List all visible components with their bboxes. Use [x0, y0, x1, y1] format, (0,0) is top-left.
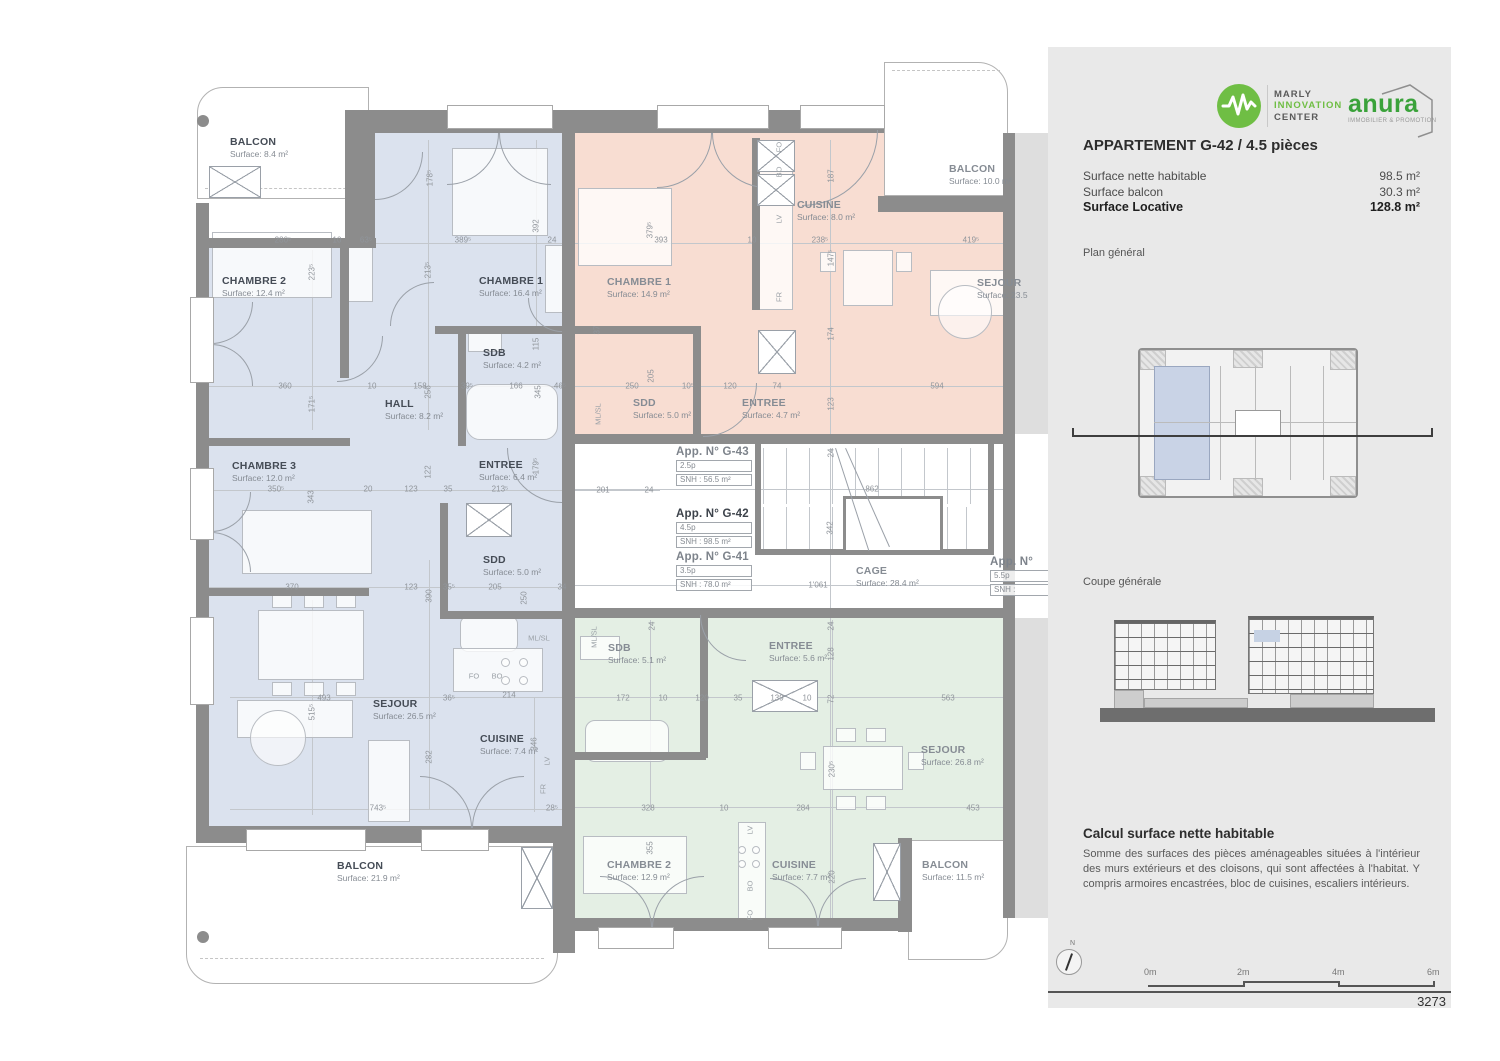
- room-name: CUISINE: [772, 860, 830, 871]
- dimension-label: 223⁵: [308, 264, 317, 281]
- room-label: SEJOUR Surface: 23.5: [977, 278, 1028, 300]
- dimension-label: 345: [534, 385, 543, 398]
- plan-sheet: BALCON Surface: 8.4 m² CHAMBRE 2 Surface…: [0, 0, 1500, 1061]
- apartment-tag: App. N° G-43 2.5p SNH : 56.5 m²: [676, 446, 752, 486]
- dimension-label: 370: [285, 583, 298, 592]
- room-surface: Surface: 7.4 m²: [480, 746, 538, 756]
- dimension-label: 355: [646, 841, 655, 854]
- surface-stats: Surface nette habitable 98.5 m² Surface …: [1083, 169, 1420, 216]
- dimension-label: 35: [734, 694, 743, 703]
- dimension-label: 282: [425, 750, 434, 763]
- room-name: CHAMBRE 2: [222, 276, 286, 287]
- room-name: CUISINE: [480, 734, 538, 745]
- hairline: [763, 448, 764, 504]
- room-surface: Surface: 7.7 m²: [772, 872, 830, 882]
- fixture-label: ML/SL: [528, 634, 550, 643]
- room-name: ENTREE: [479, 460, 537, 471]
- dimension-label: 122: [424, 465, 433, 478]
- round-fixture: [752, 860, 760, 868]
- furniture: [336, 594, 356, 608]
- dimension-label: 123: [827, 397, 836, 410]
- stat-value: 128.8 m²: [1370, 200, 1420, 216]
- stat-row: Surface Locative 128.8 m²: [1083, 200, 1420, 216]
- wall: [440, 503, 448, 615]
- dimension-label: 328: [641, 804, 654, 813]
- window-opening: [190, 297, 214, 383]
- marly-line2: INNOVATION: [1274, 100, 1342, 112]
- dimension-label: 201: [596, 486, 609, 495]
- dimension-label: 280⁵: [275, 236, 292, 245]
- room-label: BALCON Surface: 8.4 m²: [230, 137, 288, 159]
- dimension-label: 256: [424, 385, 433, 398]
- room-surface: Surface: 11.5 m²: [922, 872, 984, 882]
- room-name: ENTREE: [742, 398, 800, 409]
- apartment-rooms: 4.5p: [676, 522, 752, 534]
- calc-title: Calcul surface nette habitable: [1083, 826, 1274, 841]
- room-surface: Surface: 23.5: [977, 290, 1028, 300]
- stat-row: Surface balcon 30.3 m²: [1083, 185, 1420, 201]
- dimension-label: 390: [425, 589, 434, 602]
- room-name: CHAMBRE 1: [607, 277, 671, 288]
- hairline: [786, 448, 787, 504]
- wall: [553, 843, 575, 953]
- room-label: CUISINE Surface: 7.4 m²: [480, 734, 538, 756]
- round-fixture: [519, 658, 528, 667]
- window-opening: [800, 105, 885, 129]
- scale-tick-0m: 0m: [1144, 967, 1157, 977]
- scale-tick-6m: 6m: [1427, 967, 1440, 977]
- dimension-label: 10: [368, 382, 377, 391]
- room-surface: Surface: 4.7 m²: [742, 410, 800, 420]
- dimension-label: 230⁵: [828, 761, 837, 778]
- furniture: [578, 188, 672, 266]
- fixture-label: LV: [543, 757, 552, 766]
- hairline: [966, 507, 967, 549]
- dimension-label: 10⁵: [682, 382, 694, 391]
- fixture-label: LV: [746, 826, 755, 835]
- room-surface: Surface: 28.4 m²: [856, 578, 919, 588]
- round-fixture: [738, 846, 746, 854]
- hairline: [947, 507, 948, 549]
- marly-line3: CENTER: [1274, 112, 1342, 124]
- dimension-label: 343: [307, 490, 316, 503]
- apartment-tag: App. N° G-42 4.5p SNH : 98.5 m²: [676, 508, 752, 548]
- section-cut-line: [1072, 435, 1433, 437]
- furniture: [738, 822, 766, 920]
- dimension-label: 10: [748, 236, 757, 245]
- furniture: [460, 616, 518, 652]
- room-surface: Surface: 8.0 m²: [797, 212, 855, 222]
- shaft-crossbox: [209, 166, 261, 198]
- apartment-snh: SNH : 78.0 m²: [676, 579, 752, 591]
- room-label: CHAMBRE 3 Surface: 12.0 m²: [232, 461, 296, 483]
- fixture-label: ML/SL: [594, 403, 603, 425]
- fixture-label: FO: [775, 142, 784, 152]
- room-surface: Surface: 26.8 m²: [921, 757, 984, 767]
- highlighted-apartment: [1154, 366, 1210, 480]
- room-surface: Surface: 5.6 m²: [769, 653, 827, 663]
- dimension-label: 10: [333, 236, 342, 245]
- apartment-snh: SNH : 98.5 m²: [676, 536, 752, 548]
- wall: [878, 196, 1010, 212]
- dimension-label: 35⁵: [443, 583, 455, 592]
- room-name: SDB: [608, 643, 666, 654]
- room-surface: Surface: 16.4 m²: [479, 288, 543, 298]
- fixture-label: FO: [746, 910, 755, 920]
- furniture: [896, 252, 912, 272]
- shaft-crossbox: [521, 847, 553, 909]
- room-label: CUISINE Surface: 8.0 m²: [797, 200, 855, 222]
- room-surface: Surface: 14.9 m²: [607, 289, 671, 299]
- apartment-rooms: 2.5p: [676, 460, 752, 472]
- apartment-number: App. N°: [990, 556, 1048, 568]
- window-opening: [190, 468, 214, 540]
- room-surface: Surface: 12.9 m²: [607, 872, 671, 882]
- fixture-label: FO: [469, 672, 479, 681]
- room-name: BALCON: [922, 860, 984, 871]
- dimension-label: 10: [803, 694, 812, 703]
- fixture-label: BO: [775, 167, 784, 178]
- dimension-label: 24: [827, 449, 836, 458]
- furniture: [866, 796, 886, 810]
- room-label: SEJOUR Surface: 26.8 m²: [921, 745, 984, 767]
- room-name: ENTREE: [769, 641, 827, 652]
- round-fixture: [501, 658, 510, 667]
- sheet-number: 3273: [1417, 994, 1446, 1009]
- hairline: [575, 585, 1010, 586]
- scale-tick-4m: 4m: [1332, 967, 1345, 977]
- stat-value: 98.5 m²: [1379, 169, 1420, 185]
- apartment-snh: SNH : 56.5 m²: [676, 474, 752, 486]
- dimension-label: 28⁵: [546, 804, 558, 813]
- marly-wordmark: MARLY INNOVATION CENTER: [1274, 89, 1342, 124]
- dimension-label: 453: [966, 804, 979, 813]
- dimension-label: 213⁵: [424, 262, 433, 279]
- furniture: [800, 752, 816, 770]
- hairline: [970, 448, 971, 504]
- wall: [562, 608, 1010, 618]
- hairline: [196, 490, 660, 491]
- room-label: SDB Surface: 5.1 m²: [608, 643, 666, 665]
- dimension-label: 393: [654, 236, 667, 245]
- furniture: [866, 728, 886, 742]
- fixture-label: BO: [746, 881, 755, 892]
- page-title: APPARTEMENT G-42 / 4.5 pièces: [1083, 137, 1318, 154]
- furniture: [258, 610, 364, 680]
- room-surface: Surface: 21.9 m²: [337, 873, 400, 883]
- hairline: [575, 489, 1010, 490]
- window-opening: [246, 829, 366, 851]
- logo-divider: [1267, 85, 1268, 127]
- room-surface: Surface: 10.0 m²: [949, 176, 1012, 186]
- wall: [562, 434, 1010, 444]
- dimension-label: 24: [645, 486, 654, 495]
- dimension-label: 187: [827, 169, 836, 182]
- elevator-shaft: [843, 496, 943, 553]
- dimension-label: 250: [625, 382, 638, 391]
- room-label: CHAMBRE 1 Surface: 16.4 m²: [479, 276, 543, 298]
- dimension-label: 213⁵: [492, 485, 509, 494]
- dimension-label: 515⁵: [308, 704, 317, 721]
- wall: [1003, 133, 1015, 918]
- stat-label: Surface Locative: [1083, 200, 1183, 216]
- dimension-label: 24: [548, 236, 557, 245]
- hairline: [575, 807, 1010, 808]
- dimension-label: 166: [509, 382, 522, 391]
- room-label: ENTREE Surface: 6.4 m²: [479, 460, 537, 482]
- stat-label: Surface nette habitable: [1083, 169, 1206, 185]
- apartment-rooms: 3.5p: [676, 565, 752, 577]
- dimension-label: 350⁵: [268, 485, 285, 494]
- room-label: SEJOUR Surface: 26.5 m²: [373, 699, 436, 721]
- room-name: CHAMBRE 1: [479, 276, 543, 287]
- dimension-label: 342: [826, 521, 835, 534]
- balcony-dashed-line: [200, 958, 544, 959]
- dimension-label: 24: [648, 622, 657, 631]
- wall: [988, 443, 994, 555]
- furniture: [836, 728, 856, 742]
- furniture: [843, 250, 893, 306]
- room-name: CUISINE: [797, 200, 855, 211]
- dimension-label: 392: [532, 219, 541, 232]
- pillar: [197, 115, 209, 127]
- room-label: CUISINE Surface: 7.7 m²: [772, 860, 830, 882]
- plan-general-thumbnail: [1138, 348, 1358, 498]
- room-name: CAGE: [856, 566, 919, 577]
- balcony-dashed-line: [892, 70, 1000, 71]
- shaft-crossbox: [757, 174, 795, 206]
- hairline: [575, 386, 1010, 387]
- dimension-label: 128: [827, 647, 836, 660]
- room-label: CHAMBRE 1 Surface: 14.9 m²: [607, 277, 671, 299]
- dimension-label: 35: [444, 485, 453, 494]
- room-label: ENTREE Surface: 5.6 m²: [769, 641, 827, 663]
- room-label: SDD Surface: 5.0 m²: [633, 398, 691, 420]
- furniture: [272, 682, 292, 696]
- dimension-label: 39⁵: [461, 382, 473, 391]
- shaft-crossbox: [873, 843, 901, 901]
- fixture-label: ML/SL: [590, 626, 599, 648]
- room-name: SEJOUR: [921, 745, 984, 756]
- round-fixture: [738, 860, 746, 868]
- calc-body: Somme des surfaces des pièces aménageabl…: [1083, 847, 1420, 892]
- room-surface: Surface: 5.1 m²: [608, 655, 666, 665]
- room-surface: Surface: 8.4 m²: [230, 149, 288, 159]
- room-label: ENTREE Surface: 4.7 m²: [742, 398, 800, 420]
- marly-wave-icon: [1216, 83, 1262, 129]
- hairline: [786, 507, 787, 549]
- dimension-label: 284: [796, 804, 809, 813]
- dimension-label: 389⁵: [455, 236, 472, 245]
- wall: [575, 752, 706, 760]
- dimension-label: 34: [558, 583, 567, 592]
- stat-value: 30.3 m²: [1379, 185, 1420, 201]
- furniture: [453, 648, 543, 692]
- wall: [209, 438, 350, 446]
- furniture: [466, 384, 558, 440]
- scale-tick-2m: 2m: [1237, 967, 1250, 977]
- coupe-generale-label: Coupe générale: [1083, 576, 1161, 588]
- dimension-label: 123: [404, 583, 417, 592]
- balcony-outline: [908, 840, 1008, 960]
- room-name: SEJOUR: [373, 699, 436, 710]
- window-opening: [598, 927, 674, 949]
- hairline: [809, 507, 810, 549]
- floor-plan: BALCON Surface: 8.4 m² CHAMBRE 2 Surface…: [0, 0, 1048, 1061]
- room-surface: Surface: 5.0 m²: [483, 567, 541, 577]
- room-surface: Surface: 6.4 m²: [479, 472, 537, 482]
- dimension-label: 37: [593, 326, 602, 335]
- apartment-number: App. N° G-42: [676, 508, 752, 520]
- wall: [435, 326, 562, 334]
- dimension-label: 862: [865, 485, 878, 494]
- dimension-label: 205: [488, 583, 501, 592]
- dimension-label: 63⁵: [360, 236, 372, 245]
- dimension-label: 178⁵: [426, 170, 435, 187]
- shaft-crossbox: [466, 503, 512, 537]
- hairline: [763, 507, 764, 549]
- dimension-label: 123: [404, 485, 417, 494]
- stat-row: Surface nette habitable 98.5 m²: [1083, 169, 1420, 185]
- marly-line1: MARLY: [1274, 89, 1342, 101]
- apartment-rooms: 5.5p: [990, 570, 1048, 582]
- dimension-label: 594: [930, 382, 943, 391]
- room-name: BALCON: [949, 164, 1012, 175]
- marly-logo: MARLY INNOVATION CENTER: [1216, 83, 1342, 129]
- plan-general-label: Plan général: [1083, 247, 1145, 259]
- dimension-label: 214: [502, 691, 515, 700]
- dimension-label: 238⁵: [812, 236, 829, 245]
- footer-rule: [1048, 991, 1451, 993]
- anura-logo: anura IMMOBILIER & PROMOTION: [1348, 91, 1438, 139]
- room-label: BALCON Surface: 21.9 m²: [337, 861, 400, 883]
- room-name: BALCON: [230, 137, 288, 148]
- room-label: CHAMBRE 2 Surface: 12.4 m²: [222, 276, 286, 298]
- coupe-generale-drawing: [1100, 610, 1435, 722]
- window-opening: [421, 829, 489, 851]
- dimension-label: 120: [695, 694, 708, 703]
- wall: [562, 443, 575, 826]
- hairline: [809, 448, 810, 504]
- room-name: BALCON: [337, 861, 400, 872]
- window-opening: [768, 927, 842, 949]
- dimension-label: 360: [278, 382, 291, 391]
- window-opening: [657, 105, 769, 129]
- shaft-crossbox: [758, 330, 796, 374]
- room-label: HALL Surface: 8.2 m²: [385, 399, 443, 421]
- room-name: CHAMBRE 2: [607, 860, 671, 871]
- round-fixture: [250, 710, 306, 766]
- dimension-label: 205: [647, 369, 656, 382]
- room-label: BALCON Surface: 11.5 m²: [922, 860, 984, 882]
- info-panel: MARLY INNOVATION CENTER anura IMMOBILIER…: [1048, 47, 1451, 1008]
- room-name: SEJOUR: [977, 278, 1028, 289]
- room-label: CAGE Surface: 28.4 m²: [856, 566, 919, 588]
- room-label: BALCON Surface: 10.0 m²: [949, 164, 1012, 186]
- room-name: SDD: [633, 398, 691, 409]
- dimension-label: 379⁵: [646, 222, 655, 239]
- pillar: [197, 931, 209, 943]
- room-name: SDD: [483, 555, 541, 566]
- fixture-label: LV: [775, 215, 784, 224]
- dimension-label: 172: [616, 694, 629, 703]
- highlighted-unit-section: [1254, 630, 1280, 642]
- fixture-label: FR: [775, 292, 784, 302]
- furniture: [836, 796, 856, 810]
- dimension-label: 72: [827, 695, 836, 704]
- scale-bar: 0m 2m 4m 6m: [1048, 967, 1451, 991]
- dimension-label: 139: [770, 694, 783, 703]
- dimension-label: 419⁵: [963, 236, 980, 245]
- fixture-label: FR: [539, 784, 548, 794]
- dimension-label: 147⁵: [827, 250, 836, 267]
- dimension-label: 36⁵: [443, 694, 455, 703]
- furniture: [336, 682, 356, 696]
- apartment-number: App. N° G-43: [676, 446, 752, 458]
- window-opening: [447, 105, 553, 129]
- room-name: HALL: [385, 399, 443, 410]
- apartment-number: App. N° G-41: [676, 551, 752, 563]
- apartment-snh: SNH :: [990, 584, 1048, 596]
- furniture: [242, 510, 372, 574]
- apartment-tag: App. N° G-41 3.5p SNH : 78.0 m²: [676, 551, 752, 591]
- furniture: [272, 594, 292, 608]
- dimension-label: 46⁵: [554, 382, 566, 391]
- wall: [440, 611, 564, 619]
- fixture-label: BO: [492, 672, 503, 681]
- round-fixture: [519, 676, 528, 685]
- wall: [562, 110, 575, 443]
- room-label: SDB Surface: 4.2 m²: [483, 348, 541, 370]
- dimension-label: 250: [520, 591, 529, 604]
- dimension-label: 10: [720, 804, 729, 813]
- room-surface: Surface: 12.4 m²: [222, 288, 286, 298]
- wall: [755, 443, 761, 555]
- dimension-label: 563: [941, 694, 954, 703]
- room-label: CHAMBRE 2 Surface: 12.9 m²: [607, 860, 671, 882]
- window-opening: [190, 617, 214, 705]
- furniture: [304, 594, 324, 608]
- round-fixture: [752, 846, 760, 854]
- room-name: SDB: [483, 348, 541, 359]
- dimension-label: 171⁵: [308, 396, 317, 413]
- room-surface: Surface: 4.2 m²: [483, 360, 541, 370]
- hairline: [947, 448, 948, 504]
- dimension-label: 20: [364, 485, 373, 494]
- north-label: N: [1070, 940, 1075, 947]
- hairline: [830, 448, 831, 918]
- stat-label: Surface balcon: [1083, 185, 1163, 201]
- dimension-label: 493: [317, 694, 330, 703]
- dimension-label: 10: [659, 694, 668, 703]
- wall: [693, 326, 701, 438]
- apartment-tag: App. N° 5.5p SNH :: [990, 556, 1048, 596]
- logo-row: MARLY INNOVATION CENTER anura IMMOBILIER…: [1048, 83, 1451, 139]
- anura-house-icon: [1344, 82, 1440, 144]
- dimension-label: 743⁵: [370, 804, 387, 813]
- room-surface: Surface: 12.0 m²: [232, 473, 296, 483]
- dimension-label: 174: [827, 327, 836, 340]
- dimension-label: 74: [773, 382, 782, 391]
- room-surface: Surface: 8.2 m²: [385, 411, 443, 421]
- room-surface: Surface: 5.0 m²: [633, 410, 691, 420]
- room-name: CHAMBRE 3: [232, 461, 296, 472]
- dimension-label: 24: [827, 622, 836, 631]
- room-surface: Surface: 26.5 m²: [373, 711, 436, 721]
- dimension-label: 120: [723, 382, 736, 391]
- apartment-fill: [1010, 618, 1048, 918]
- room-label: SDD Surface: 5.0 m²: [483, 555, 541, 577]
